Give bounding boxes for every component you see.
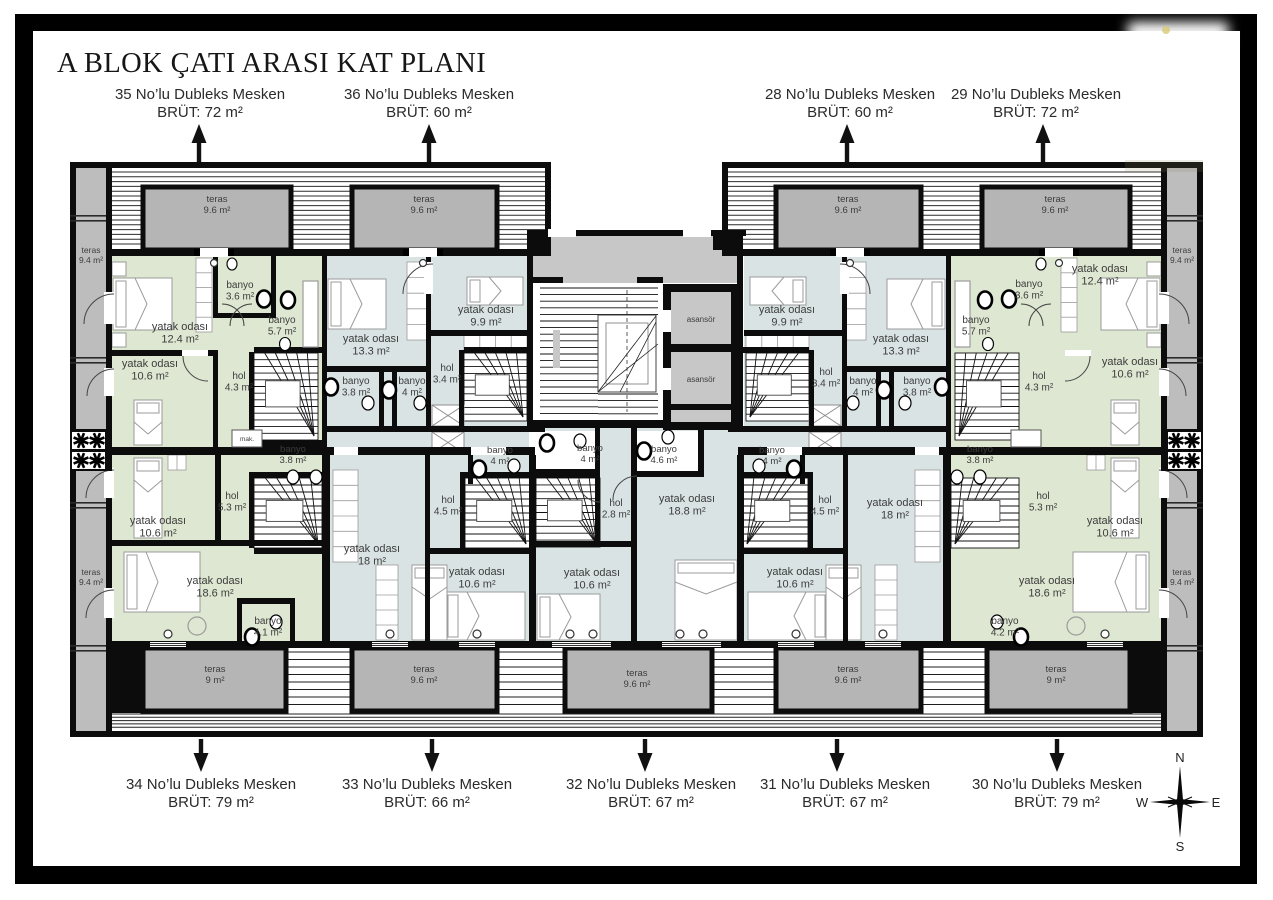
svg-text:teras: teras	[413, 194, 434, 205]
svg-text:4.5 m²: 4.5 m²	[811, 507, 840, 518]
svg-text:9.6 m²: 9.6 m²	[835, 205, 862, 216]
svg-text:9.9 m²: 9.9 m²	[470, 317, 502, 329]
svg-text:3.8 m²: 3.8 m²	[280, 455, 307, 466]
svg-text:banyo: banyo	[991, 616, 1019, 627]
svg-text:4 m²: 4 m²	[491, 456, 510, 467]
svg-text:3.8 m²: 3.8 m²	[967, 455, 994, 466]
svg-text:12.4 m²: 12.4 m²	[161, 334, 199, 346]
svg-text:hol: hol	[818, 495, 831, 506]
svg-text:yatak odası: yatak odası	[152, 321, 208, 333]
svg-text:4.6 m²: 4.6 m²	[651, 455, 678, 466]
svg-text:9.4 m²: 9.4 m²	[1170, 577, 1194, 587]
svg-text:teras: teras	[206, 194, 227, 205]
svg-text:4 m²: 4 m²	[853, 388, 874, 399]
svg-text:BRÜT: 67 m²: BRÜT: 67 m²	[608, 793, 694, 811]
svg-text:banyo: banyo	[903, 376, 931, 387]
svg-text:35 No’lu Dubleks Mesken: 35 No’lu Dubleks Mesken	[115, 86, 285, 103]
svg-text:banyo: banyo	[651, 444, 677, 455]
svg-text:9 m²: 9 m²	[206, 675, 225, 686]
svg-text:4 m²: 4 m²	[402, 388, 423, 399]
svg-text:3.4 m²: 3.4 m²	[433, 375, 462, 386]
svg-text:9.6 m²: 9.6 m²	[624, 679, 651, 690]
svg-text:BRÜT: 67 m²: BRÜT: 67 m²	[802, 793, 888, 811]
svg-text:10.6 m²: 10.6 m²	[139, 528, 177, 540]
svg-text:10.6 m²: 10.6 m²	[131, 371, 169, 383]
svg-text:4.3 m²: 4.3 m²	[1025, 383, 1054, 394]
svg-text:5.3 m²: 5.3 m²	[1029, 503, 1058, 514]
svg-text:BRÜT: 72 m²: BRÜT: 72 m²	[157, 103, 243, 121]
svg-text:9.9 m²: 9.9 m²	[771, 317, 803, 329]
svg-text:hol: hol	[440, 363, 453, 374]
svg-text:5.7 m²: 5.7 m²	[268, 327, 297, 338]
svg-text:yatak odası: yatak odası	[1019, 575, 1075, 587]
svg-text:4 m²: 4 m²	[581, 454, 600, 465]
svg-text:hol: hol	[225, 491, 238, 502]
svg-text:banyo: banyo	[962, 315, 990, 326]
svg-text:36 No’lu Dubleks Mesken: 36 No’lu Dubleks Mesken	[344, 86, 514, 103]
svg-text:E: E	[1212, 795, 1221, 810]
svg-text:10.6 m²: 10.6 m²	[458, 579, 496, 591]
svg-text:yatak odası: yatak odası	[873, 333, 929, 345]
svg-text:S: S	[1176, 839, 1185, 854]
svg-text:18.6 m²: 18.6 m²	[1028, 588, 1066, 600]
svg-text:banyo: banyo	[967, 444, 993, 455]
svg-text:10.6 m²: 10.6 m²	[573, 580, 611, 592]
svg-text:9.6 m²: 9.6 m²	[411, 205, 438, 216]
svg-text:banyo: banyo	[342, 376, 370, 387]
svg-text:BRÜT: 60 m²: BRÜT: 60 m²	[807, 103, 893, 121]
svg-text:BRÜT: 72 m²: BRÜT: 72 m²	[993, 103, 1079, 121]
svg-text:3.6 m²: 3.6 m²	[226, 292, 255, 303]
svg-text:2.8 m²: 2.8 m²	[602, 510, 631, 521]
svg-text:banyo: banyo	[1015, 279, 1043, 290]
svg-text:teras: teras	[1044, 194, 1065, 205]
svg-text:banyo: banyo	[268, 315, 296, 326]
svg-text:yatak odası: yatak odası	[867, 497, 923, 509]
svg-text:banyo: banyo	[254, 616, 282, 627]
svg-text:10.6 m²: 10.6 m²	[1111, 369, 1149, 381]
svg-text:3.6 m²: 3.6 m²	[1015, 291, 1044, 302]
svg-text:yatak odası: yatak odası	[187, 575, 243, 587]
svg-text:hol: hol	[819, 367, 832, 378]
svg-text:13.3 m²: 13.3 m²	[882, 346, 920, 358]
svg-text:9.4 m²: 9.4 m²	[79, 577, 103, 587]
svg-text:yatak odası: yatak odası	[759, 304, 815, 316]
svg-text:yatak odası: yatak odası	[344, 543, 400, 555]
svg-text:32 No’lu Dubleks Mesken: 32 No’lu Dubleks Mesken	[566, 776, 736, 793]
svg-text:hol: hol	[232, 371, 245, 382]
svg-text:hol: hol	[441, 495, 454, 506]
svg-text:teras: teras	[82, 567, 101, 577]
svg-text:4.1 m²: 4.1 m²	[254, 628, 283, 639]
svg-text:5.3 m²: 5.3 m²	[218, 503, 247, 514]
svg-text:banyo: banyo	[849, 376, 877, 387]
svg-text:3.4 m²: 3.4 m²	[812, 379, 841, 390]
svg-text:9.6 m²: 9.6 m²	[411, 675, 438, 686]
svg-text:9.6 m²: 9.6 m²	[835, 675, 862, 686]
svg-text:hol: hol	[1032, 371, 1045, 382]
svg-text:12.4 m²: 12.4 m²	[1081, 276, 1119, 288]
svg-text:18.6 m²: 18.6 m²	[196, 588, 234, 600]
svg-text:9.6 m²: 9.6 m²	[204, 205, 231, 216]
svg-text:yatak odası: yatak odası	[130, 515, 186, 527]
svg-text:teras: teras	[837, 194, 858, 205]
svg-text:4.5 m²: 4.5 m²	[434, 507, 463, 518]
svg-text:A BLOK ÇATI ARASI KAT PLANI: A BLOK ÇATI ARASI KAT PLANI	[57, 48, 486, 79]
svg-text:18 m²: 18 m²	[358, 556, 386, 568]
svg-text:teras: teras	[82, 245, 101, 255]
svg-text:hol: hol	[609, 498, 622, 509]
svg-text:banyo: banyo	[759, 445, 785, 456]
svg-text:yatak odası: yatak odası	[1087, 515, 1143, 527]
svg-text:banyo: banyo	[487, 445, 513, 456]
svg-text:33 No’lu Dubleks Mesken: 33 No’lu Dubleks Mesken	[342, 776, 512, 793]
svg-text:mak.: mak.	[240, 436, 254, 443]
svg-text:9.4 m²: 9.4 m²	[79, 255, 103, 265]
svg-text:BRÜT: 79 m²: BRÜT: 79 m²	[168, 793, 254, 811]
svg-text:BRÜT: 60 m²: BRÜT: 60 m²	[386, 103, 472, 121]
svg-text:18.8 m²: 18.8 m²	[668, 506, 706, 518]
svg-text:18 m²: 18 m²	[881, 510, 909, 522]
svg-text:29 No’lu Dubleks Mesken: 29 No’lu Dubleks Mesken	[951, 86, 1121, 103]
svg-text:asansör: asansör	[687, 315, 716, 324]
svg-text:9.6 m²: 9.6 m²	[1042, 205, 1069, 216]
svg-text:10.6 m²: 10.6 m²	[776, 579, 814, 591]
svg-text:yatak odası: yatak odası	[767, 566, 823, 578]
svg-text:9.4 m²: 9.4 m²	[1170, 255, 1194, 265]
svg-text:teras: teras	[837, 664, 858, 675]
svg-text:yatak odası: yatak odası	[449, 566, 505, 578]
svg-text:yatak odası: yatak odası	[1102, 356, 1158, 368]
svg-text:yatak odası: yatak odası	[458, 304, 514, 316]
svg-text:5.7 m²: 5.7 m²	[962, 327, 991, 338]
svg-text:teras: teras	[413, 664, 434, 675]
svg-text:4 m²: 4 m²	[763, 456, 782, 467]
svg-text:9 m²: 9 m²	[1047, 675, 1066, 686]
svg-text:28 No’lu Dubleks Mesken: 28 No’lu Dubleks Mesken	[765, 86, 935, 103]
svg-text:BRÜT: 79 m²: BRÜT: 79 m²	[1014, 793, 1100, 811]
svg-text:N: N	[1175, 750, 1184, 765]
svg-text:banyo: banyo	[280, 444, 306, 455]
svg-text:4.3 m²: 4.3 m²	[225, 383, 254, 394]
svg-text:4.2 m²: 4.2 m²	[991, 628, 1020, 639]
svg-text:banyo: banyo	[398, 376, 426, 387]
svg-text:yatak odası: yatak odası	[564, 567, 620, 579]
svg-text:3.8 m²: 3.8 m²	[342, 388, 371, 399]
svg-text:3.8 m²: 3.8 m²	[903, 388, 932, 399]
svg-text:31 No’lu Dubleks Mesken: 31 No’lu Dubleks Mesken	[760, 776, 930, 793]
svg-text:BRÜT: 66 m²: BRÜT: 66 m²	[384, 793, 470, 811]
svg-text:yatak odası: yatak odası	[122, 358, 178, 370]
svg-text:yatak odası: yatak odası	[343, 333, 399, 345]
svg-text:asansör: asansör	[687, 375, 716, 384]
svg-text:hol: hol	[1036, 491, 1049, 502]
svg-text:yatak odası: yatak odası	[659, 493, 715, 505]
svg-text:teras: teras	[1045, 664, 1066, 675]
svg-text:10.6 m²: 10.6 m²	[1096, 528, 1134, 540]
svg-text:yatak odası: yatak odası	[1072, 263, 1128, 275]
svg-text:W: W	[1136, 795, 1149, 810]
svg-text:teras: teras	[1173, 567, 1192, 577]
svg-text:13.3 m²: 13.3 m²	[352, 346, 390, 358]
svg-text:teras: teras	[204, 664, 225, 675]
svg-text:teras: teras	[1173, 245, 1192, 255]
svg-text:34 No’lu Dubleks Mesken: 34 No’lu Dubleks Mesken	[126, 776, 296, 793]
svg-text:teras: teras	[626, 668, 647, 679]
svg-text:banyo: banyo	[226, 280, 254, 291]
svg-text:30 No’lu Dubleks Mesken: 30 No’lu Dubleks Mesken	[972, 776, 1142, 793]
svg-text:banyo: banyo	[577, 443, 603, 454]
